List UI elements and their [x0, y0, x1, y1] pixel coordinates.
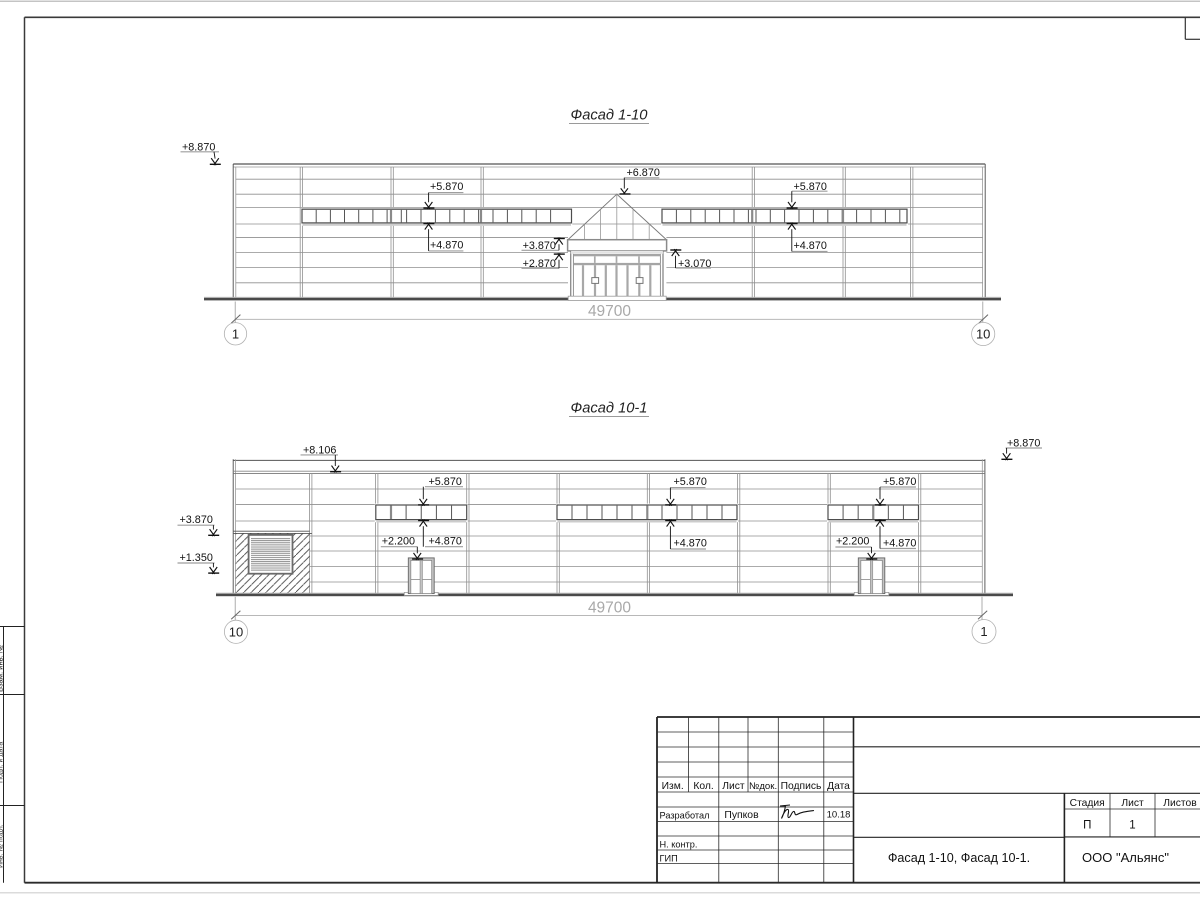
svg-text:10: 10	[976, 327, 990, 342]
svg-text:+6.870: +6.870	[627, 167, 660, 179]
svg-text:Разработал: Разработал	[660, 810, 710, 820]
svg-text:Лист: Лист	[722, 781, 745, 792]
svg-text:+1.350: +1.350	[180, 552, 213, 564]
svg-text:Лист: Лист	[1121, 798, 1144, 809]
svg-text:+5.870: +5.870	[674, 476, 707, 488]
svg-text:+5.870: +5.870	[430, 181, 463, 193]
svg-text:Изм.: Изм.	[662, 781, 684, 792]
svg-text:Подп. и дата: Подп. и дата	[0, 742, 5, 783]
svg-text:Кол.: Кол.	[693, 781, 713, 792]
svg-text:Н. контр.: Н. контр.	[660, 840, 698, 850]
svg-text:10: 10	[229, 624, 243, 639]
svg-text:1: 1	[980, 624, 987, 639]
svg-text:+4.870: +4.870	[674, 538, 707, 550]
svg-text:Дата: Дата	[827, 781, 850, 792]
svg-text:Фасад 10-1: Фасад 10-1	[571, 401, 648, 417]
svg-text:+5.870: +5.870	[883, 476, 916, 488]
svg-text:Подпись: Подпись	[781, 781, 822, 792]
svg-text:ООО "Альянс": ООО "Альянс"	[1082, 850, 1169, 865]
svg-text:+2.200: +2.200	[836, 536, 869, 548]
svg-text:Фасад 1-10: Фасад 1-10	[571, 108, 649, 124]
svg-text:Стадия: Стадия	[1070, 798, 1105, 809]
svg-text:ГИП: ГИП	[660, 853, 678, 863]
svg-text:+4.870: +4.870	[429, 536, 462, 548]
svg-text:+2.200: +2.200	[382, 535, 415, 547]
svg-text:Инв. № подл.: Инв. № подл.	[0, 824, 5, 868]
svg-text:+4.870: +4.870	[883, 537, 916, 549]
svg-text:1: 1	[1129, 820, 1135, 832]
svg-text:+4.870: +4.870	[794, 240, 827, 252]
svg-text:1: 1	[232, 326, 239, 341]
svg-text:49700: 49700	[588, 599, 631, 616]
svg-text:Взам. инв. №: Взам. инв. №	[0, 645, 5, 692]
svg-text:№док.: №док.	[749, 781, 777, 792]
svg-text:Пупков: Пупков	[724, 810, 759, 821]
svg-text:Листов: Листов	[1163, 798, 1197, 809]
svg-text:49700: 49700	[588, 303, 631, 320]
svg-text:Фасад 1-10, Фасад 10-1.: Фасад 1-10, Фасад 10-1.	[888, 851, 1030, 865]
svg-text:П: П	[1083, 820, 1091, 832]
svg-text:10.18: 10.18	[827, 810, 851, 821]
svg-text:+4.870: +4.870	[430, 240, 463, 252]
svg-text:+3.870: +3.870	[180, 514, 213, 526]
